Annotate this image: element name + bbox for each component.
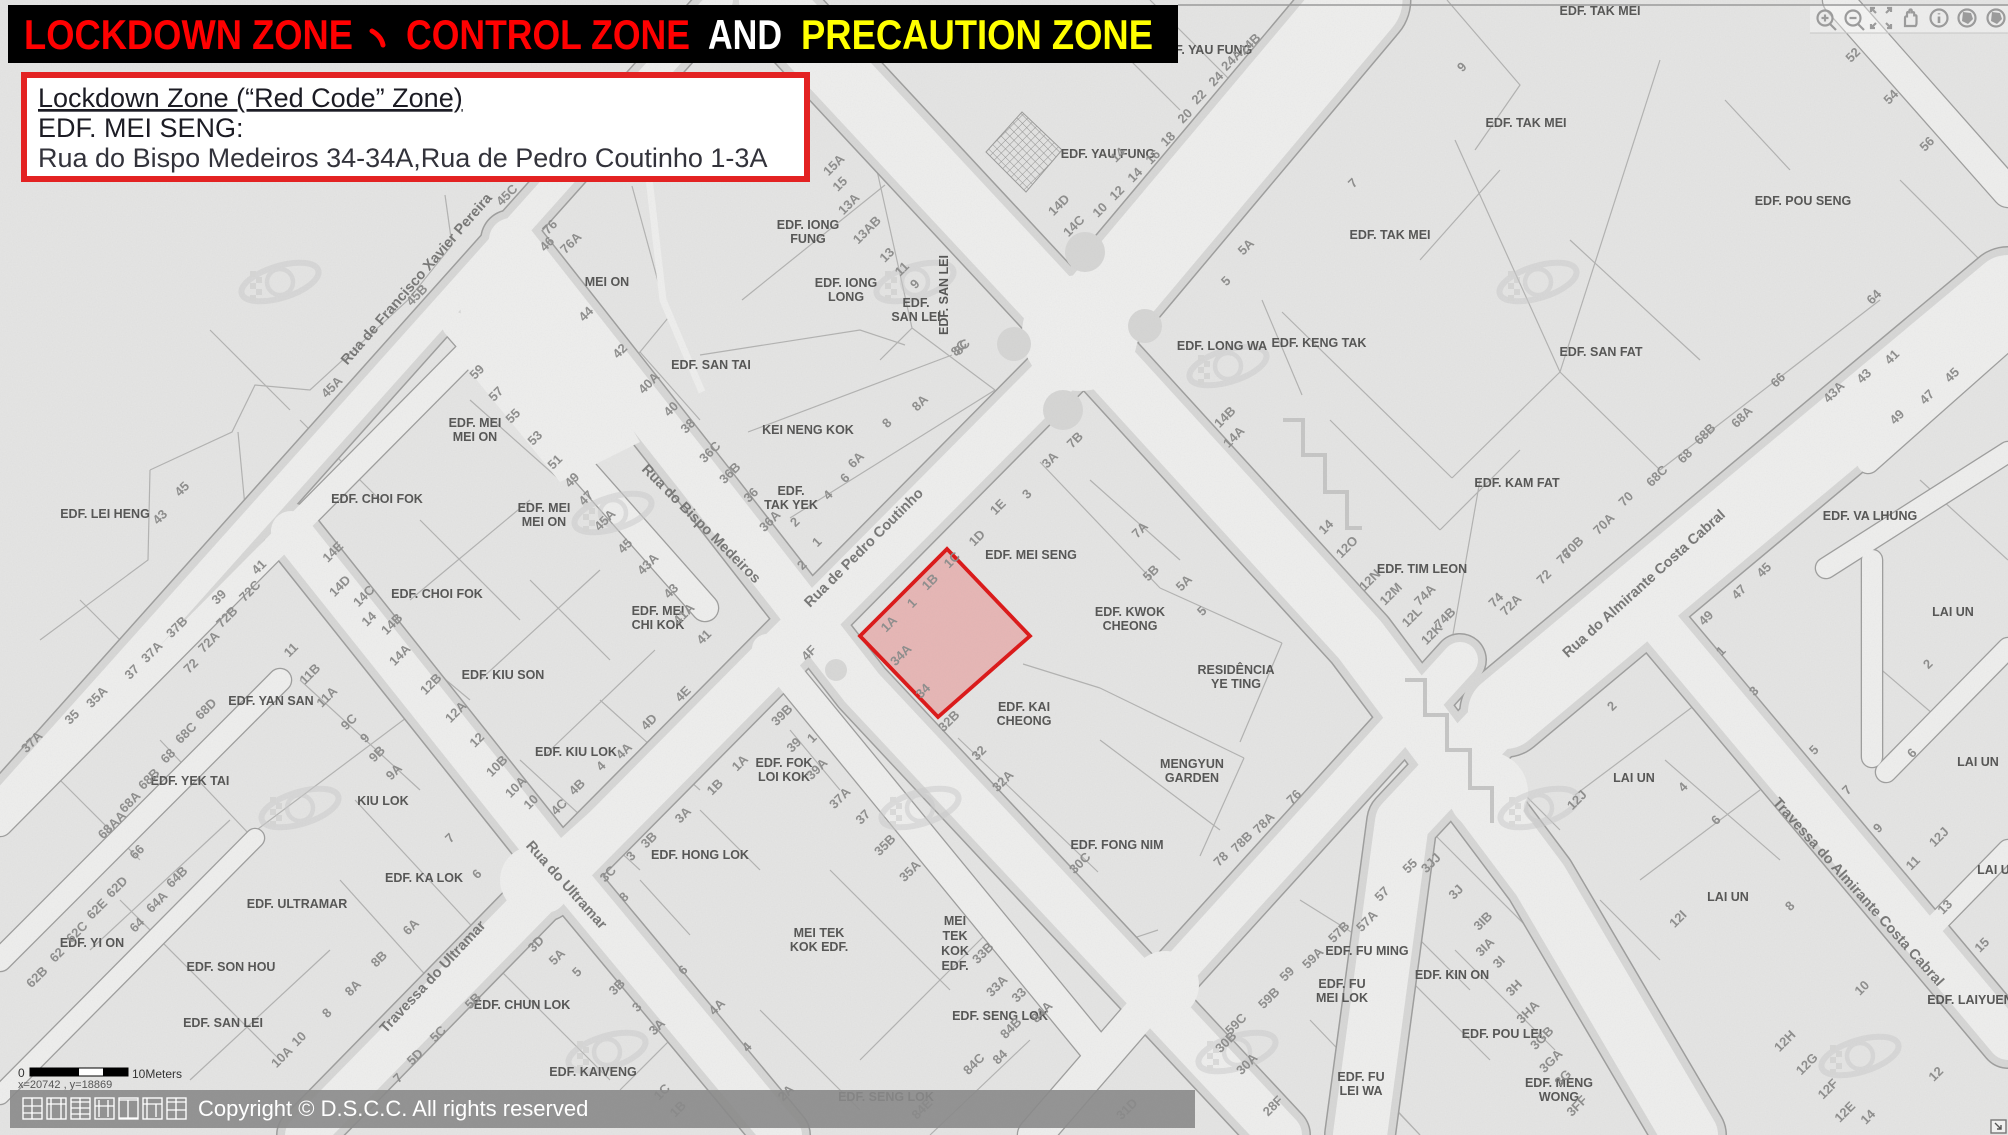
svg-text:LAI UN: LAI UN (1957, 755, 1999, 769)
svg-text:MEI ON: MEI ON (522, 515, 566, 529)
svg-text:KOK: KOK (941, 944, 969, 958)
svg-text:KEI NENG KOK: KEI NENG KOK (762, 423, 854, 437)
svg-text:LEI WA: LEI WA (1339, 1084, 1382, 1098)
svg-text:EDF. IONG: EDF. IONG (777, 218, 840, 232)
svg-text:EDF. SAN FAT: EDF. SAN FAT (1559, 345, 1642, 359)
svg-text:KOK EDF.: KOK EDF. (790, 940, 848, 954)
svg-text:EDF. TAK MEI: EDF. TAK MEI (1559, 4, 1640, 18)
svg-text:EDF. IONG: EDF. IONG (815, 276, 878, 290)
svg-text:FUNG: FUNG (790, 232, 825, 246)
svg-text:EDF. SON HOU: EDF. SON HOU (187, 960, 276, 974)
svg-text:EDF. KIU SON: EDF. KIU SON (462, 668, 545, 682)
svg-text:EDF. MEI SENG: EDF. MEI SENG (985, 548, 1077, 562)
svg-text:YE TING: YE TING (1211, 677, 1261, 691)
svg-text:LOCKDOWN ZONE: LOCKDOWN ZONE (24, 11, 353, 58)
svg-text:LAI UN: LAI UN (1613, 771, 1655, 785)
svg-text:EDF. KWOK: EDF. KWOK (1095, 605, 1165, 619)
svg-text:CHEONG: CHEONG (997, 714, 1052, 728)
svg-text:EDF. FONG NIM: EDF. FONG NIM (1070, 838, 1163, 852)
svg-text:MEI ON: MEI ON (585, 275, 629, 289)
svg-text:EDF. CHUN LOK: EDF. CHUN LOK (474, 998, 571, 1012)
svg-text:TEK: TEK (943, 929, 968, 943)
svg-text:EDF. KENG TAK: EDF. KENG TAK (1272, 336, 1367, 350)
svg-text:EDF. SAN TAI: EDF. SAN TAI (671, 358, 751, 372)
svg-text:EDF. FOK: EDF. FOK (756, 756, 813, 770)
svg-text:EDF. FU: EDF. FU (1318, 977, 1365, 991)
svg-text:EDF. HONG LOK: EDF. HONG LOK (651, 848, 749, 862)
svg-text:EDF. TAK MEI: EDF. TAK MEI (1349, 228, 1430, 242)
svg-text:EDF.: EDF. (941, 959, 968, 973)
svg-text:EDF. SAN LEI: EDF. SAN LEI (937, 255, 951, 335)
svg-text:AND: AND (708, 11, 782, 58)
svg-text:SAN LEI: SAN LEI (891, 310, 940, 324)
svg-text:EDF. SAN LEI: EDF. SAN LEI (183, 1016, 263, 1030)
svg-text:EDF. VA LHUNG: EDF. VA LHUNG (1823, 509, 1917, 523)
svg-text:EDF. KAIVENG: EDF. KAIVENG (549, 1065, 637, 1079)
svg-text:EDF. MEI SENG:: EDF. MEI SENG: (38, 113, 244, 143)
svg-text:MEI: MEI (944, 914, 966, 928)
svg-text:MEI TEK: MEI TEK (794, 926, 845, 940)
svg-text:EDF. KA LOK: EDF. KA LOK (385, 871, 463, 885)
svg-text:0: 0 (18, 1066, 25, 1080)
svg-text:CHEONG: CHEONG (1103, 619, 1158, 633)
svg-text:Lockdown Zone (“Red Code” Zone: Lockdown Zone (“Red Code” Zone) (38, 83, 463, 113)
svg-text:EDF. LAIYUEN: EDF. LAIYUEN (1927, 993, 2008, 1007)
svg-text:EDF. POU SENG: EDF. POU SENG (1755, 194, 1852, 208)
svg-text:EDF. KAM FAT: EDF. KAM FAT (1474, 476, 1560, 490)
svg-text:GARDEN: GARDEN (1165, 771, 1219, 785)
svg-text:LAI UN: LAI UN (1932, 605, 1974, 619)
svg-text:CONTROL ZONE: CONTROL ZONE (406, 11, 690, 58)
svg-text:PRECAUTION ZONE: PRECAUTION ZONE (801, 11, 1153, 58)
svg-text:MEI LOK: MEI LOK (1316, 991, 1368, 1005)
svg-text:KIU LOK: KIU LOK (357, 794, 408, 808)
svg-text:EDF. LONG WA: EDF. LONG WA (1177, 339, 1267, 353)
svg-text:EDF. CHOI FOK: EDF. CHOI FOK (391, 587, 483, 601)
svg-text:EDF. KIN ON: EDF. KIN ON (1415, 968, 1489, 982)
svg-text:EDF. KAI: EDF. KAI (998, 700, 1050, 714)
svg-text:EDF.: EDF. (777, 484, 804, 498)
svg-text:EDF. FU MING: EDF. FU MING (1325, 944, 1408, 958)
svg-text:10Meters: 10Meters (132, 1067, 182, 1081)
svg-text:LAI UN: LAI UN (1977, 863, 2008, 877)
svg-text:x=20742 , y=18869: x=20742 , y=18869 (18, 1079, 112, 1091)
svg-text:RESIDÊNCIA: RESIDÊNCIA (1197, 662, 1274, 677)
svg-text:EDF. LEI HENG: EDF. LEI HENG (60, 507, 150, 521)
svg-text:EDF. TAK MEI: EDF. TAK MEI (1485, 116, 1566, 130)
svg-text:EDF.: EDF. (902, 296, 929, 310)
svg-text:EDF. ULTRAMAR: EDF. ULTRAMAR (247, 897, 347, 911)
svg-text:EDF. TIM LEON: EDF. TIM LEON (1377, 562, 1467, 576)
svg-text:LAI UN: LAI UN (1707, 890, 1749, 904)
svg-text:MENGYUN: MENGYUN (1160, 757, 1224, 771)
svg-text:Copyright © D.S.C.C. All right: Copyright © D.S.C.C. All rights reserved (198, 1096, 588, 1121)
svg-text:EDF. KIU LOK: EDF. KIU LOK (535, 745, 617, 759)
svg-text:MEI ON: MEI ON (453, 430, 497, 444)
svg-text:Rua do Bispo Medeiros 34-34A,R: Rua do Bispo Medeiros 34-34A,Rua de Pedr… (38, 143, 767, 173)
svg-text:LONG: LONG (828, 290, 864, 304)
svg-text:EDF. MEI: EDF. MEI (518, 501, 571, 515)
svg-text:EDF. YEK TAI: EDF. YEK TAI (151, 774, 230, 788)
svg-text:EDF. FU: EDF. FU (1337, 1070, 1384, 1084)
svg-text:EDF. YAN SAN: EDF. YAN SAN (228, 694, 313, 708)
svg-text:EDF. MEI: EDF. MEI (449, 416, 502, 430)
svg-text:EDF. CHOI FOK: EDF. CHOI FOK (331, 492, 423, 506)
